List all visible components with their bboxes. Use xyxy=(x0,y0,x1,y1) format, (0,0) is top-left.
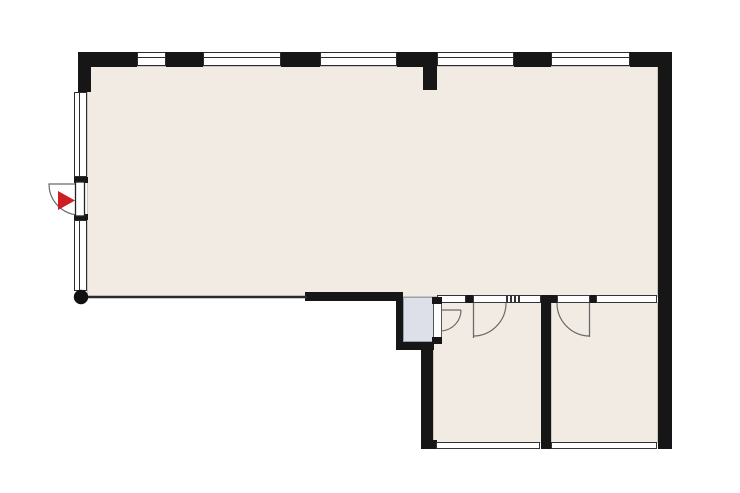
column-marker xyxy=(74,290,88,304)
door-swing-room-right xyxy=(557,303,590,336)
door-swing-shaft xyxy=(441,310,461,331)
floor-plan-canvas xyxy=(0,0,740,493)
entrance-door-leaf xyxy=(76,182,85,216)
door-swing-room-left xyxy=(474,303,507,336)
plan-linework xyxy=(0,0,740,493)
